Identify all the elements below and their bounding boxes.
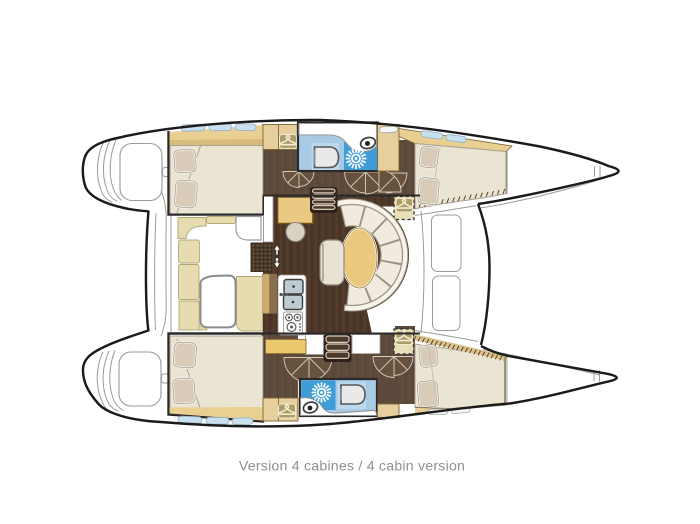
svg-text:Version 4 cabines / 4 cabin ve: Version 4 cabines / 4 cabin version [239,459,465,475]
